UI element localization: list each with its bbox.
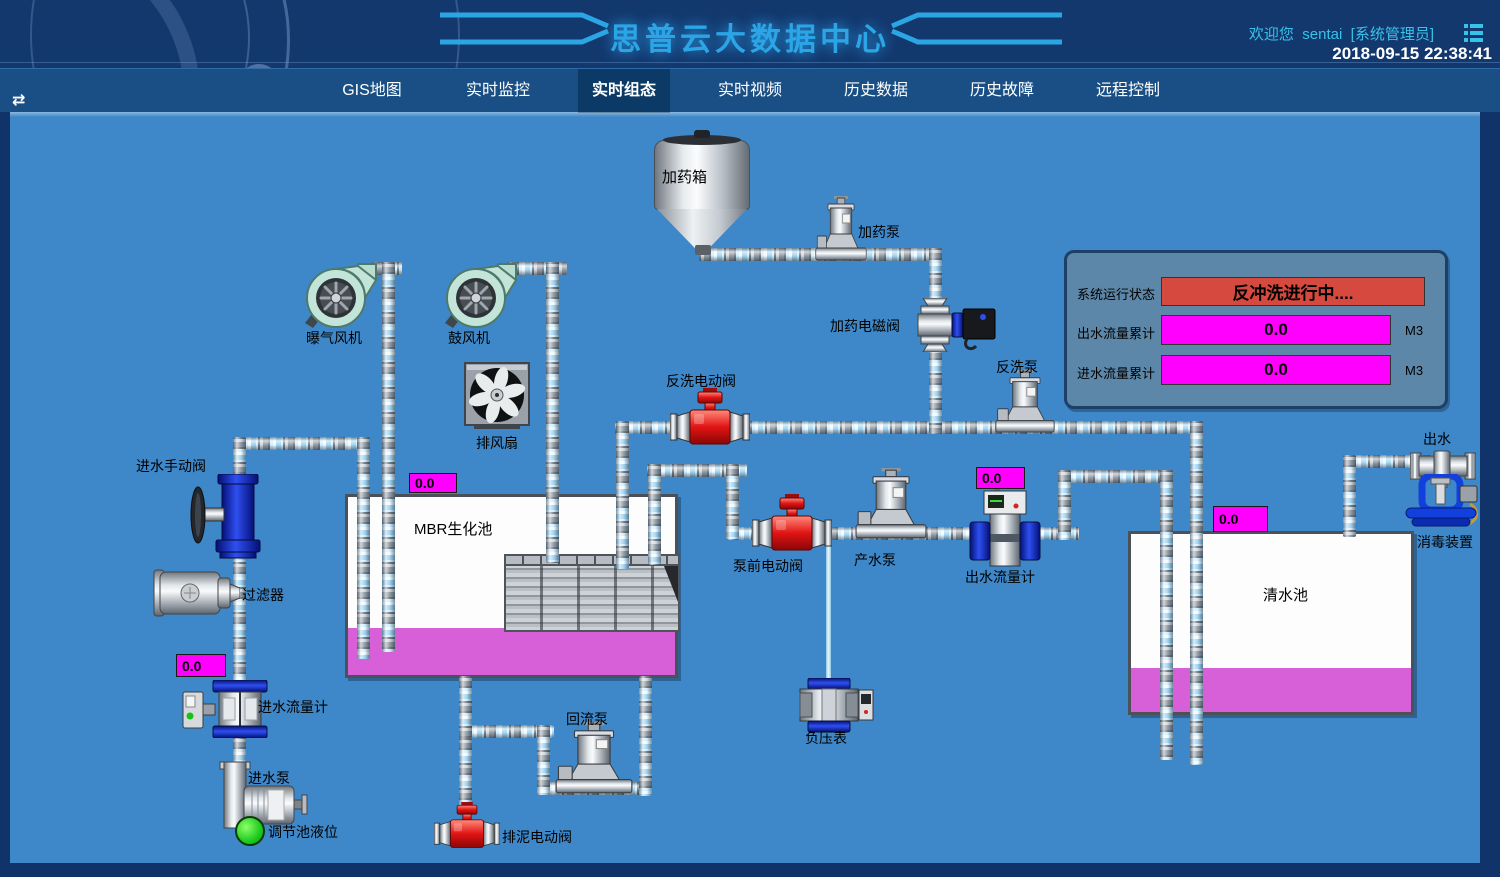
inlet-flow-value: 0.0: [176, 654, 226, 677]
dosing-solenoid-valve[interactable]: [909, 298, 1001, 352]
pipe-segment: [1160, 470, 1173, 760]
mbr-tank-label: MBR生化池: [414, 518, 492, 539]
nav-tabs: GIS地图 实时监控 实时组态 实时视频 历史数据 历史故障 远程控制: [309, 69, 1191, 113]
tab-realtime-scada[interactable]: 实时组态: [561, 69, 687, 113]
welcome-text: 欢迎您 sentai [系统管理员]: [1249, 23, 1434, 44]
outlet-flowmeter-label: 出水流量计: [965, 567, 1035, 587]
outlet-label: 出水: [1423, 429, 1451, 449]
exhaust-fan[interactable]: [464, 360, 530, 430]
tab-realtime-video[interactable]: 实时视频: [687, 69, 813, 113]
pump-icon: [555, 722, 633, 795]
pipe-segment: [233, 437, 370, 450]
dosing-tank-stem: [695, 245, 711, 255]
pipe-segment: [382, 262, 395, 652]
gauge-icon: [798, 678, 874, 734]
tab-gis-map[interactable]: GIS地图: [309, 69, 435, 113]
dosing-solenoid-valve-label: 加药电磁阀: [830, 316, 900, 336]
outlet-flow-value: 0.0: [976, 467, 1025, 489]
pipe-segment: [1058, 470, 1173, 483]
pipe-segment: [1343, 455, 1356, 537]
outlet-total-display: 0.0: [1161, 315, 1391, 345]
product-pump-label: 产水泵: [854, 550, 896, 570]
clean-liquid: [1131, 668, 1411, 712]
username: sentai: [1302, 26, 1342, 43]
page-title: 思普云大数据中心: [610, 14, 890, 59]
valve-icon: [670, 388, 750, 452]
system-status-label: 系统运行状态: [1077, 284, 1155, 303]
pipe-segment: [726, 464, 739, 540]
datetime-display: 2018-09-15 22:38:41: [1332, 44, 1492, 64]
backwash-valve-label: 反洗电动阀: [666, 371, 736, 391]
fan-icon: [464, 360, 530, 430]
tab-history-fault[interactable]: 历史故障: [939, 69, 1065, 113]
filter-icon: [152, 568, 240, 618]
inlet-total-label: 进水流量累计: [1077, 363, 1155, 382]
dosing-pump-label: 加药泵: [858, 222, 900, 242]
flowmeter-icon: [964, 488, 1048, 572]
pipe-segment: [1190, 421, 1203, 765]
nav-bar: GIS地图 实时监控 实时组态 实时视频 历史数据 历史故障 远程控制: [0, 68, 1500, 112]
valve-icon: [188, 474, 268, 566]
clean-level-value: 0.0: [1213, 506, 1268, 532]
sludge-electric-valve[interactable]: [434, 802, 500, 854]
pipe-segment: [357, 437, 370, 659]
gauge-line: [826, 540, 831, 680]
reflux-pump-label: 回流泵: [566, 709, 608, 729]
inlet-total-unit: M3: [1405, 363, 1423, 378]
backwash-electric-valve[interactable]: [670, 388, 750, 452]
valve-icon: [909, 298, 1001, 352]
filter[interactable]: [152, 568, 240, 618]
dosing-tank-label: 加药箱: [662, 166, 707, 187]
pipe-segment: [537, 725, 550, 795]
pipe-segment: [616, 421, 629, 569]
valve-icon: [752, 494, 832, 558]
system-status-display: 反冲洗进行中....: [1161, 277, 1425, 306]
user-role: [系统管理员]: [1351, 26, 1434, 43]
blower-icon: [442, 258, 518, 330]
prepump-valve-label: 泵前电动阀: [733, 556, 803, 576]
backwash-pump-label: 反洗泵: [996, 357, 1038, 377]
inlet-total-display: 0.0: [1161, 355, 1391, 385]
inlet-flowmeter-label: 进水流量计: [258, 697, 328, 717]
product-water-pump[interactable]: [855, 468, 927, 540]
clean-tank-label: 清水池: [1263, 584, 1308, 605]
blower[interactable]: [442, 258, 518, 330]
vacuum-gauge-label: 负压表: [805, 728, 847, 748]
disinfection-device[interactable]: [1398, 474, 1490, 534]
aeration-blower-label: 曝气风机: [306, 328, 362, 348]
pipe-segment: [546, 262, 559, 563]
sludge-valve-label: 排泥电动阀: [502, 827, 572, 847]
status-panel: 系统运行状态 反冲洗进行中.... 出水流量累计 0.0 M3 进水流量累计 0…: [1064, 250, 1448, 409]
mbr-liquid: [348, 628, 675, 675]
inlet-manual-valve-label: 进水手动阀: [136, 456, 206, 476]
pump-icon: [995, 370, 1055, 434]
regulating-level-indicator: [235, 816, 265, 846]
regulating-level-label: 调节池液位: [268, 822, 338, 842]
mbr-level-value: 0.0: [409, 473, 457, 493]
tab-remote-control[interactable]: 远程控制: [1065, 69, 1191, 113]
inlet-manual-valve[interactable]: [188, 474, 268, 566]
blower-label: 鼓风机: [448, 328, 490, 348]
inlet-pump-label: 进水泵: [248, 768, 290, 788]
valve-icon: [434, 802, 500, 854]
membrane-module: [504, 562, 680, 632]
filter-label: 过滤器: [242, 585, 284, 605]
menu-list-icon[interactable]: [1464, 24, 1484, 45]
tab-history-data[interactable]: 历史数据: [813, 69, 939, 113]
collapse-toggle-icon[interactable]: ⇄: [12, 90, 25, 110]
disinfection-icon: [1398, 474, 1490, 534]
exhaust-fan-label: 排风扇: [476, 433, 518, 453]
dosing-tank-cone: [657, 209, 747, 249]
outlet-flowmeter[interactable]: [964, 488, 1048, 572]
pipe-segment: [1058, 470, 1071, 540]
process-diagram: 0.0 0.0 0.0 0.0 系统运行状态 反冲洗进行中.... 出水流量累计…: [10, 112, 1480, 863]
pipe-segment: [648, 464, 661, 565]
blower-icon: [302, 258, 378, 330]
aeration-blower[interactable]: [302, 258, 378, 330]
tab-realtime-monitor[interactable]: 实时监控: [435, 69, 561, 113]
pipe-segment: [639, 676, 652, 796]
reflux-pump[interactable]: [555, 722, 633, 795]
disinfection-label: 消毒装置: [1417, 532, 1473, 552]
backwash-pump[interactable]: [995, 370, 1055, 434]
vacuum-gauge[interactable]: [798, 678, 874, 734]
outlet-total-label: 出水流量累计: [1077, 323, 1155, 342]
outlet-total-unit: M3: [1405, 323, 1423, 338]
welcome-prefix: 欢迎您: [1249, 26, 1294, 43]
pump-icon: [855, 468, 927, 540]
prepump-electric-valve[interactable]: [752, 494, 832, 558]
pipe-segment: [459, 676, 472, 738]
